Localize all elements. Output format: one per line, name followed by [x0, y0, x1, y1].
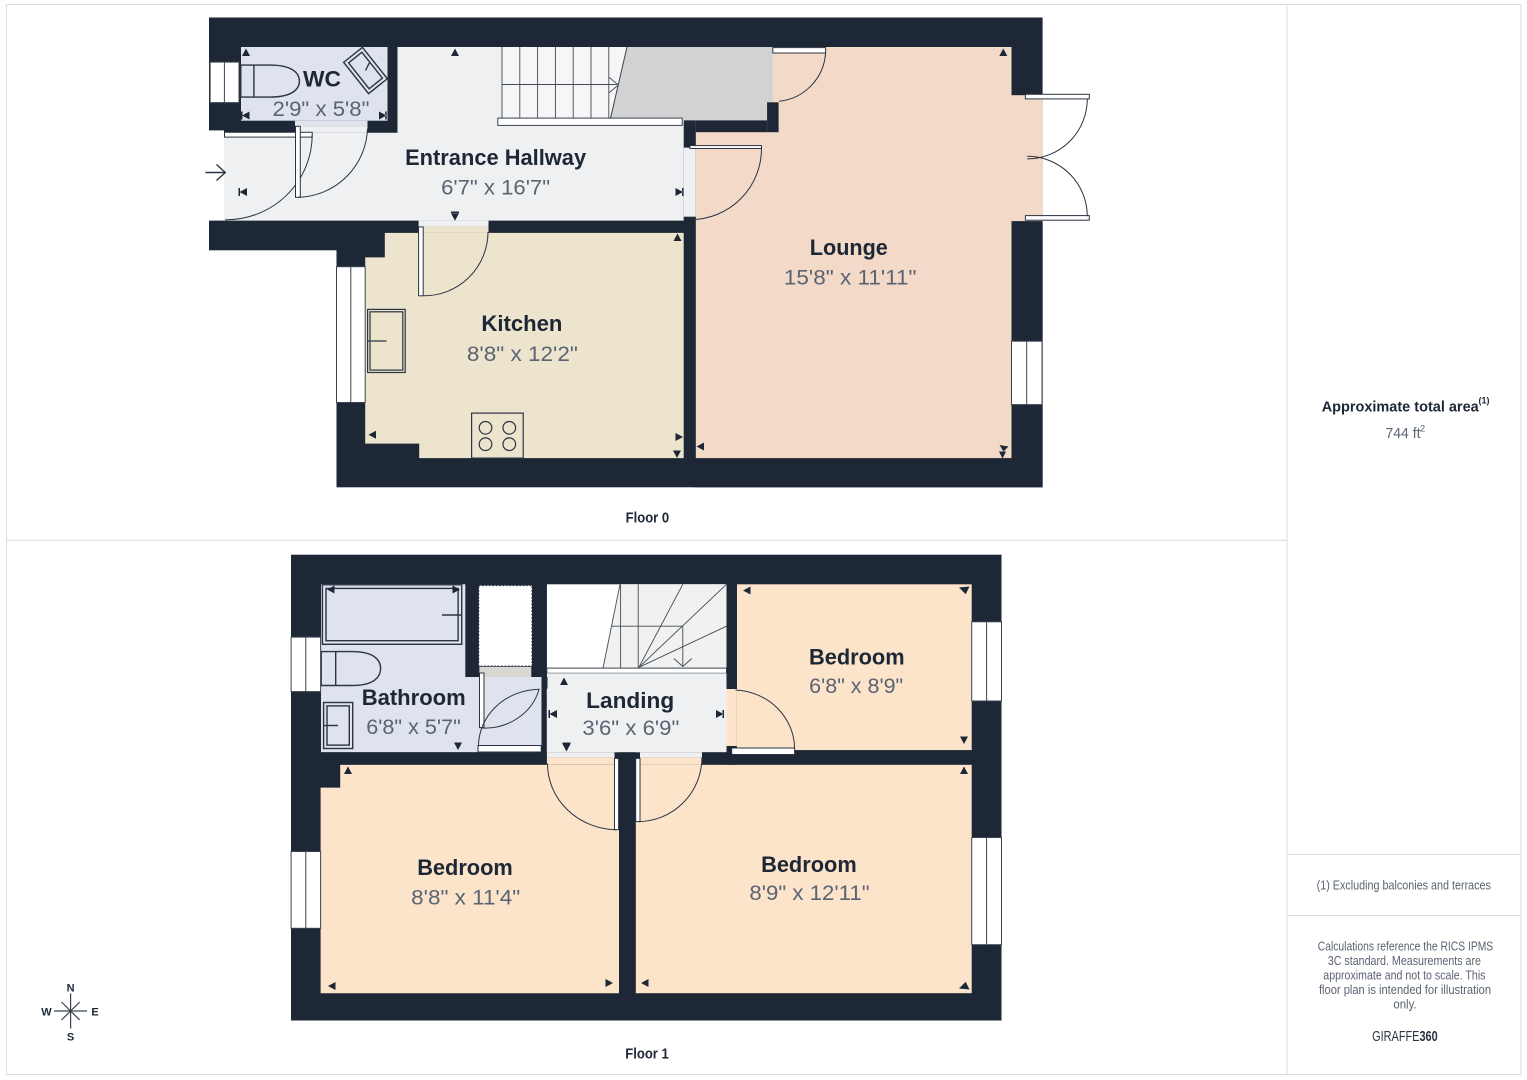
svg-text:8'9" x 12'11": 8'9" x 12'11"	[749, 882, 869, 905]
svg-text:(1) Excluding balconies and te: (1) Excluding balconies and terraces	[1317, 879, 1491, 893]
svg-text:Kitchen: Kitchen	[481, 311, 562, 336]
svg-text:Bedroom: Bedroom	[761, 852, 857, 877]
svg-text:Approximate total area: Approximate total area	[1322, 399, 1480, 416]
svg-text:approximate and not to scale.: approximate and not to scale. This	[1323, 968, 1486, 983]
svg-text:GIRAFFE360: GIRAFFE360	[1372, 1028, 1438, 1045]
svg-text:6'8" x 8'9": 6'8" x 8'9"	[809, 675, 903, 698]
svg-text:S: S	[67, 1032, 74, 1044]
svg-text:Floor 1: Floor 1	[625, 1046, 669, 1063]
svg-text:Entrance Hallway: Entrance Hallway	[405, 145, 587, 170]
svg-text:Landing: Landing	[586, 688, 674, 713]
svg-text:only.: only.	[1393, 997, 1416, 1012]
svg-text:Bathroom: Bathroom	[362, 685, 466, 710]
svg-text:3'6" x 6'9": 3'6" x 6'9"	[582, 717, 679, 740]
svg-text:3C standard. Measurements are: 3C standard. Measurements are	[1328, 953, 1481, 968]
svg-text:2'9" x 5'8": 2'9" x 5'8"	[273, 98, 370, 121]
svg-text:floor plan is intended for ill: floor plan is intended for illustration	[1319, 982, 1491, 997]
svg-text:Floor 0: Floor 0	[626, 510, 670, 527]
svg-text:Bedroom: Bedroom	[417, 855, 513, 880]
svg-text:WC: WC	[303, 67, 341, 92]
svg-text:N: N	[67, 983, 75, 995]
svg-text:W: W	[41, 1007, 52, 1019]
svg-text:15'8" x 11'11": 15'8" x 11'11"	[784, 267, 917, 290]
svg-text:Calculations reference the RIC: Calculations reference the RICS IPMS	[1318, 939, 1494, 954]
svg-text:Bedroom: Bedroom	[809, 645, 905, 670]
svg-text:6'7" x 16'7": 6'7" x 16'7"	[441, 177, 550, 200]
svg-text:8'8" x 12'2": 8'8" x 12'2"	[467, 343, 578, 366]
svg-text:8'8" x 11'4": 8'8" x 11'4"	[411, 887, 520, 910]
svg-text:6'8" x 5'7": 6'8" x 5'7"	[366, 716, 461, 739]
svg-text:E: E	[91, 1007, 98, 1019]
svg-text:744 ft: 744 ft	[1386, 426, 1421, 442]
svg-text:Lounge: Lounge	[810, 235, 888, 260]
svg-text:2: 2	[1420, 424, 1425, 435]
svg-text:(1): (1)	[1479, 396, 1490, 406]
